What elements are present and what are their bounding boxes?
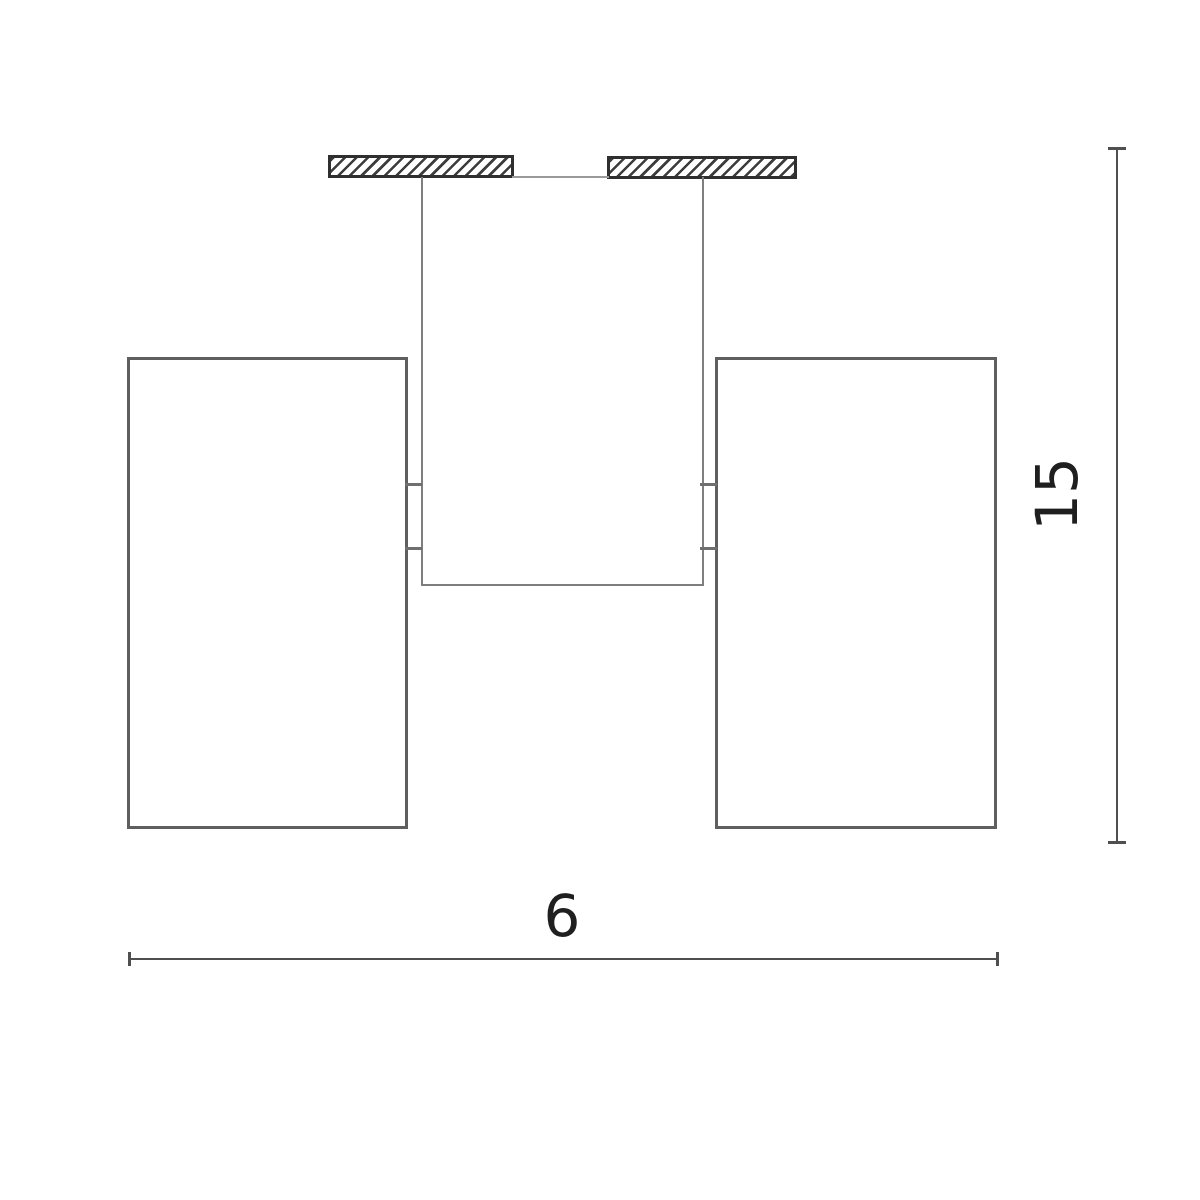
shade-connector-right-lower-tick — [700, 547, 717, 550]
ceiling-mount-plate-left-hatched — [328, 155, 514, 178]
height-dimension-top-tick — [1108, 147, 1126, 150]
width-dimension-line — [129, 958, 998, 960]
width-dimension-right-tick — [996, 952, 999, 966]
width-dimension-left-tick — [128, 952, 131, 966]
fixture-body-outline — [421, 177, 704, 586]
lamp-shade-right-outline — [715, 357, 997, 829]
height-dimension-label: 15 — [1028, 457, 1086, 531]
shade-connector-left-upper-tick — [405, 483, 422, 486]
dimension-drawing: 15 6 — [0, 0, 1200, 1200]
height-dimension-bottom-tick — [1108, 841, 1126, 844]
lamp-shade-left-outline — [127, 357, 408, 829]
shade-connector-left-lower-tick — [405, 547, 422, 550]
ceiling-mount-plate-right-hatched — [607, 156, 797, 179]
height-dimension-line — [1116, 148, 1118, 843]
width-dimension-label: 6 — [544, 887, 581, 945]
shade-connector-right-upper-tick — [700, 483, 717, 486]
